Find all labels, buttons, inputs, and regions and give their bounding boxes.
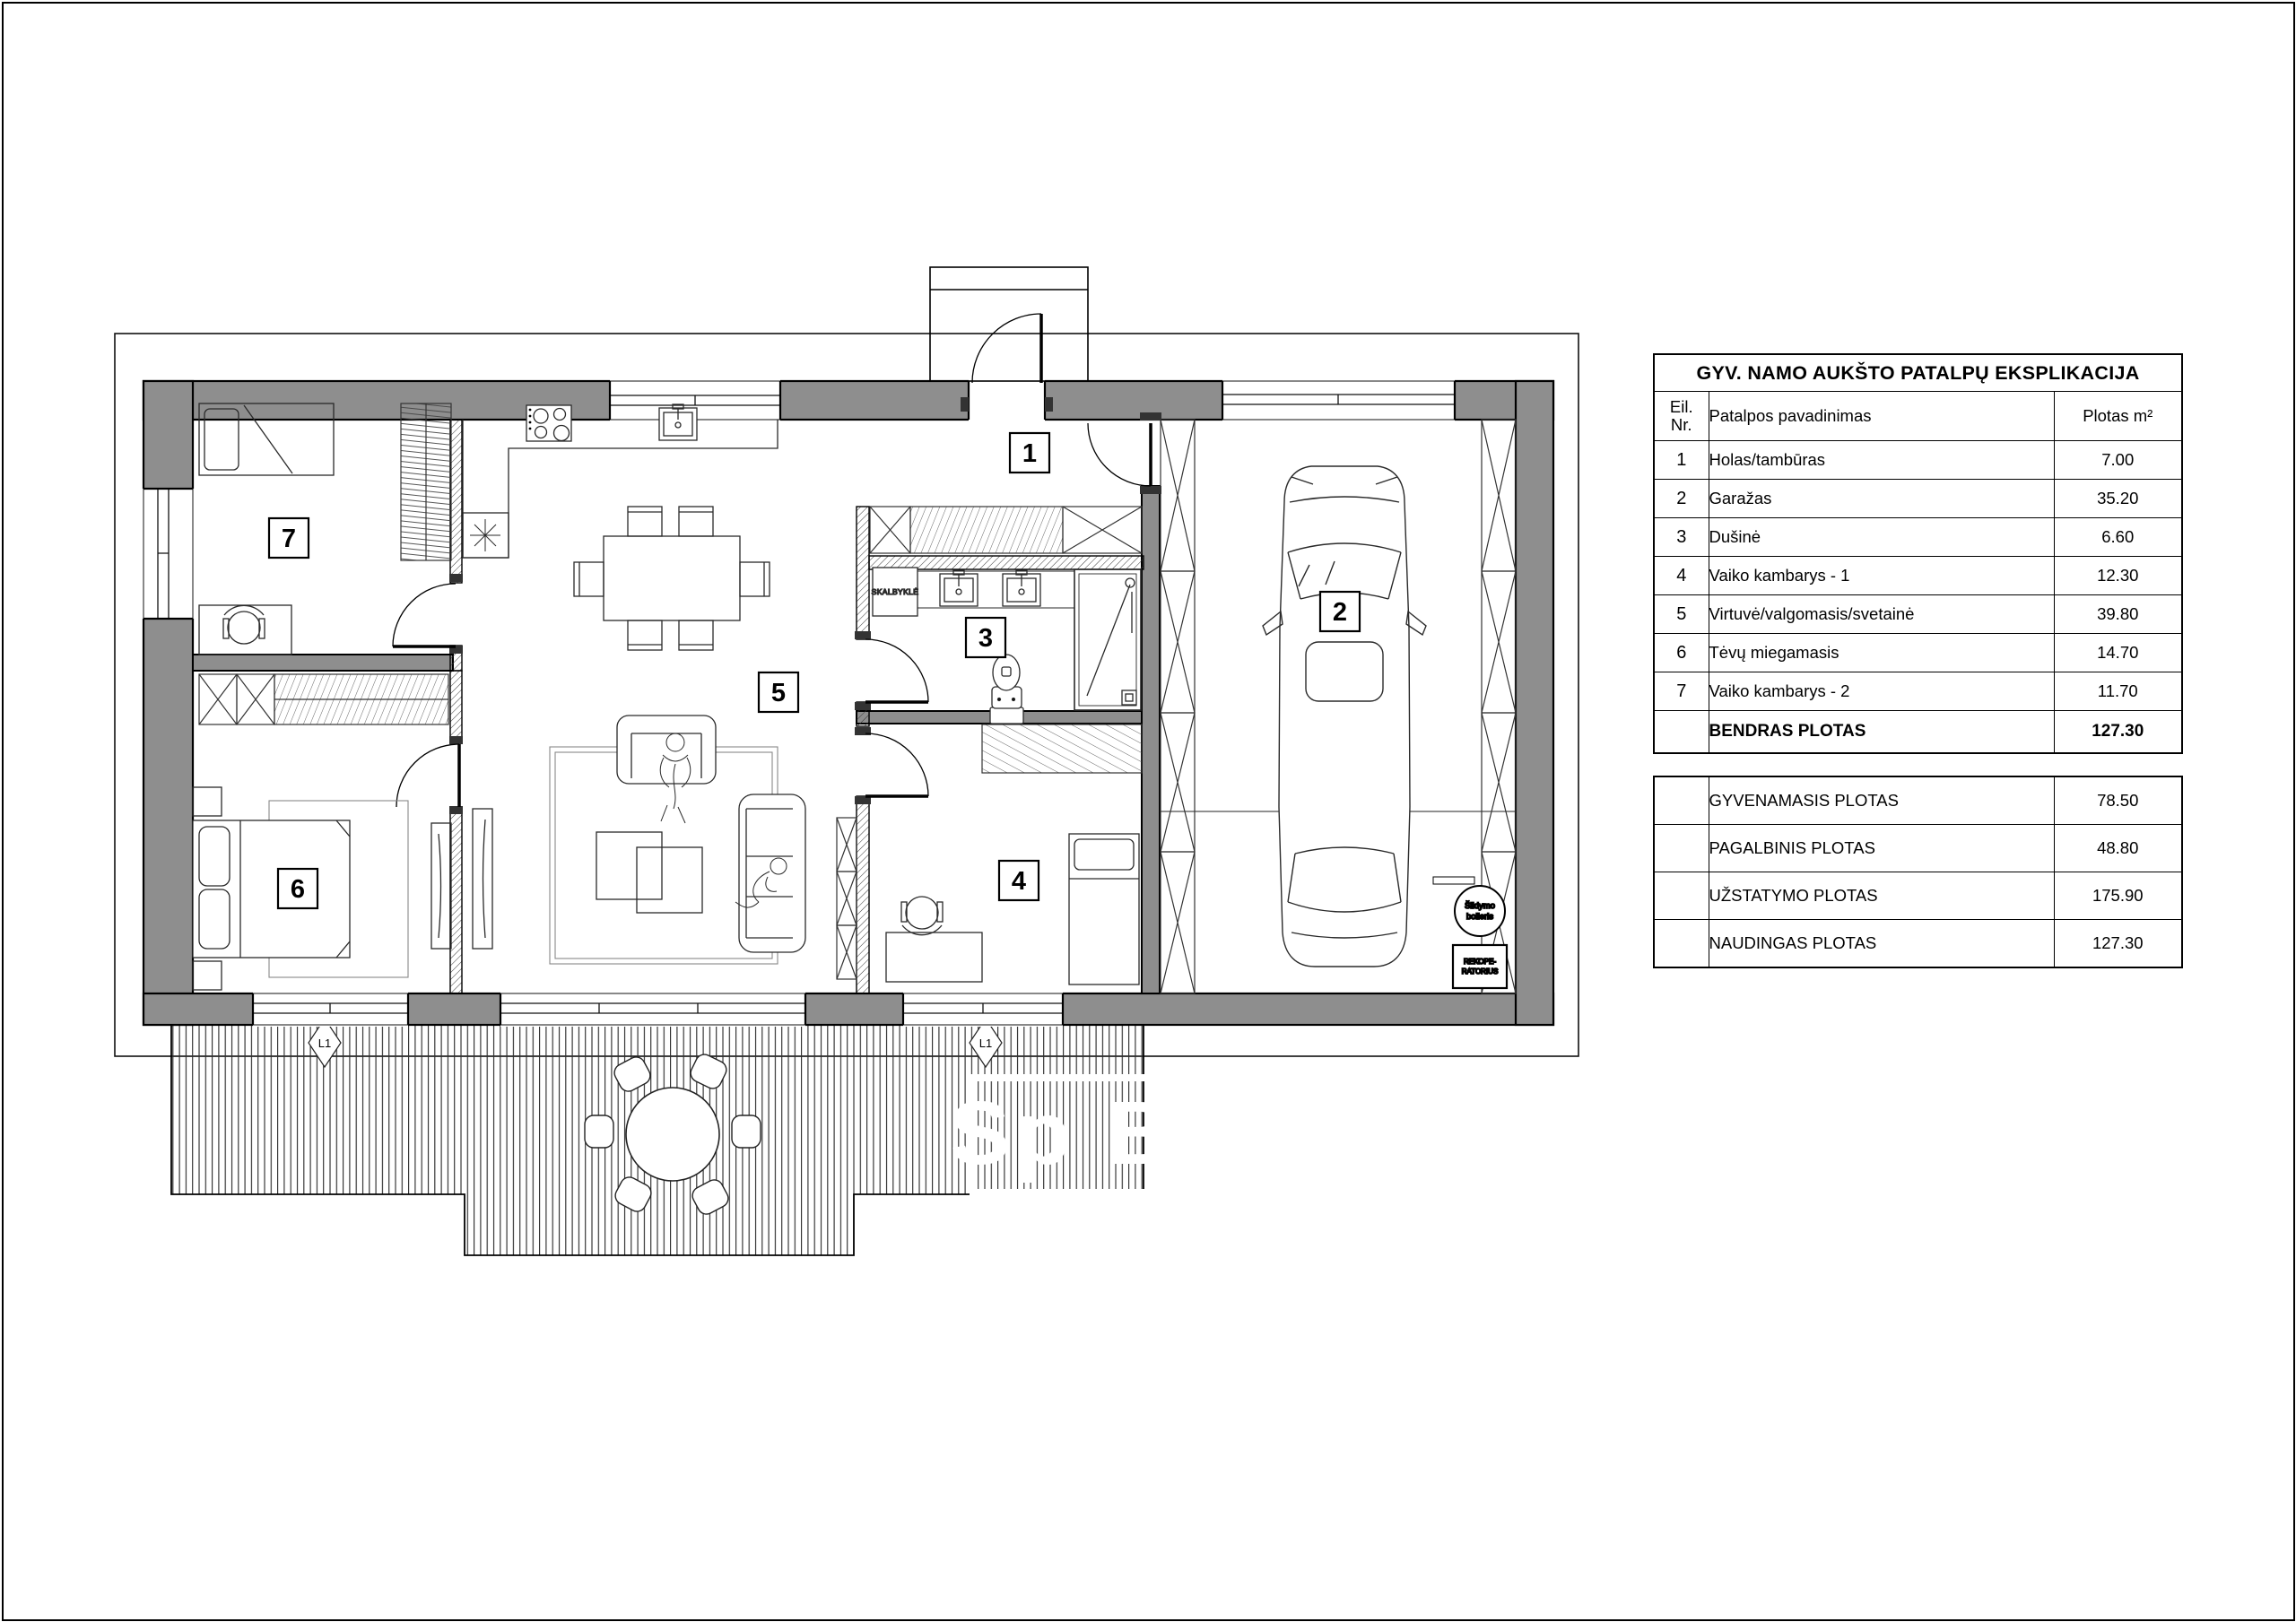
room-label-5: 5 bbox=[759, 672, 798, 712]
svg-text:4: 4 bbox=[1012, 867, 1026, 896]
room7-door bbox=[393, 584, 456, 646]
armchair bbox=[617, 716, 716, 784]
svg-text:Sp B: Sp B bbox=[950, 1083, 1176, 1184]
room-label-6: 6 bbox=[278, 869, 317, 908]
watermark: Sp B bbox=[950, 1078, 1176, 1193]
total-row: BENDRAS PLOTAS127.30 bbox=[1654, 711, 2182, 754]
bed-double bbox=[193, 820, 350, 958]
room6-wardrobe bbox=[199, 674, 448, 724]
room-explication-table: GYV. NAMO AUKŠTO PATALPŲ EKSPLIKACIJA Ei… bbox=[1653, 353, 2183, 754]
entrance-porch bbox=[930, 267, 1088, 381]
window-marker-label: L1 bbox=[318, 1037, 331, 1050]
table-row: 4Vaiko kambarys - 112.30 bbox=[1654, 557, 2182, 595]
tv-living bbox=[473, 809, 492, 949]
garage-door bbox=[1222, 379, 1455, 421]
boiler-label-line1: Šildymo bbox=[1465, 901, 1495, 911]
room-label-2: 2 bbox=[1320, 592, 1360, 631]
sink-2 bbox=[1003, 570, 1040, 606]
bed-single-r4 bbox=[1069, 834, 1139, 984]
kitchen-furniture bbox=[463, 404, 778, 650]
recuperator-label-line1: REKOPE- bbox=[1464, 958, 1496, 966]
dining-set bbox=[574, 507, 770, 650]
laundry-label: SKALBYKLĖ bbox=[872, 587, 919, 596]
entrance-door bbox=[972, 314, 1041, 383]
kitchen-counter bbox=[463, 420, 778, 558]
room-label-7: 7 bbox=[269, 518, 309, 558]
table-header-row: Eil.Nr. Patalpos pavadinimas Plotas m² bbox=[1654, 392, 2182, 441]
laundry-closet: SKALBYKLĖ bbox=[872, 568, 919, 616]
explication-tables: GYV. NAMO AUKŠTO PATALPŲ EKSPLIKACIJA Ei… bbox=[1653, 353, 2182, 968]
room4-door bbox=[865, 733, 928, 796]
svg-text:1: 1 bbox=[1022, 439, 1037, 468]
heating-boiler: Šildymo boileris bbox=[1455, 886, 1505, 936]
room-label-3: 3 bbox=[966, 618, 1005, 657]
room4-wardrobe bbox=[982, 724, 1142, 773]
nightstand bbox=[193, 961, 222, 990]
kitchen-sink bbox=[659, 404, 697, 440]
header-eil-nr: Eil.Nr. bbox=[1654, 392, 1709, 441]
table-row: 2Garažas35.20 bbox=[1654, 480, 2182, 518]
toilet bbox=[990, 655, 1023, 724]
header-name: Patalpos pavadinimas bbox=[1709, 392, 2054, 441]
entrance-opening bbox=[969, 379, 1045, 421]
area-summary-table: GYVENAMASIS PLOTAS78.50 PAGALBINIS PLOTA… bbox=[1653, 776, 2183, 968]
recuperator-label-line2: RATORIUS bbox=[1462, 967, 1499, 976]
bathroom-door bbox=[865, 639, 928, 702]
car bbox=[1263, 466, 1426, 967]
table-row: 6Tėvų miegamasis14.70 bbox=[1654, 634, 2182, 672]
garage-equipment: Šildymo boileris REKOPE- RATORIUS bbox=[1263, 466, 1507, 988]
svg-text:2: 2 bbox=[1333, 598, 1347, 627]
garage-lining-left bbox=[1161, 420, 1195, 993]
room6-furniture bbox=[193, 787, 451, 990]
stove bbox=[526, 405, 571, 441]
svg-text:3: 3 bbox=[978, 624, 993, 653]
nightstand bbox=[193, 787, 222, 816]
svg-text:6: 6 bbox=[291, 875, 305, 904]
vent-symbol bbox=[463, 513, 509, 558]
desk bbox=[199, 605, 291, 655]
hall-garage-door bbox=[1088, 423, 1151, 486]
summary-row: UŽSTATYMO PLOTAS175.90 bbox=[1654, 872, 2182, 920]
living-furniture bbox=[473, 716, 805, 964]
hall-wardrobe bbox=[870, 507, 1142, 553]
table-row: 7Vaiko kambarys - 211.70 bbox=[1654, 672, 2182, 711]
shower bbox=[1074, 569, 1141, 710]
coffee-tables bbox=[596, 832, 702, 913]
summary-row: PAGALBINIS PLOTAS48.80 bbox=[1654, 825, 2182, 872]
living-shelf bbox=[837, 818, 857, 979]
living-terrace-window bbox=[500, 992, 805, 1027]
header-area: Plotas m² bbox=[2054, 392, 2182, 441]
desk-chair bbox=[223, 605, 265, 644]
room4-furniture bbox=[886, 834, 1139, 984]
window-marker-label: L1 bbox=[979, 1037, 992, 1050]
summary-row: NAUDINGAS PLOTAS127.30 bbox=[1654, 920, 2182, 968]
table-row: 1Holas/tambūras7.00 bbox=[1654, 441, 2182, 480]
sink-1 bbox=[940, 570, 978, 606]
tv-room6 bbox=[431, 823, 451, 949]
svg-text:7: 7 bbox=[282, 525, 296, 553]
desk-r4 bbox=[886, 932, 982, 982]
svg-text:5: 5 bbox=[771, 679, 786, 707]
room-label-1: 1 bbox=[1010, 433, 1049, 473]
garage-shelf bbox=[1433, 877, 1474, 884]
sofa bbox=[739, 794, 805, 952]
blueprint-sheet: L1 L1 bbox=[0, 0, 2296, 1622]
desk-chair-r4 bbox=[901, 897, 943, 935]
room6-door bbox=[396, 744, 459, 807]
room6-window bbox=[253, 992, 408, 1027]
recuperator: REKOPE- RATORIUS bbox=[1453, 945, 1507, 988]
table-row: 3Dušinė6.60 bbox=[1654, 518, 2182, 557]
room4-window bbox=[903, 992, 1063, 1027]
table-row: 5Virtuvė/valgomasis/svetainė39.80 bbox=[1654, 595, 2182, 634]
room7-window bbox=[142, 489, 195, 619]
table-title: GYV. NAMO AUKŠTO PATALPŲ EKSPLIKACIJA bbox=[1654, 354, 2182, 392]
boiler-label-line2: boileris bbox=[1466, 912, 1493, 922]
room-label-4: 4 bbox=[999, 861, 1039, 900]
summary-row: GYVENAMASIS PLOTAS78.50 bbox=[1654, 776, 2182, 825]
room7-wardrobe bbox=[401, 403, 451, 560]
room7-furniture bbox=[199, 403, 334, 655]
